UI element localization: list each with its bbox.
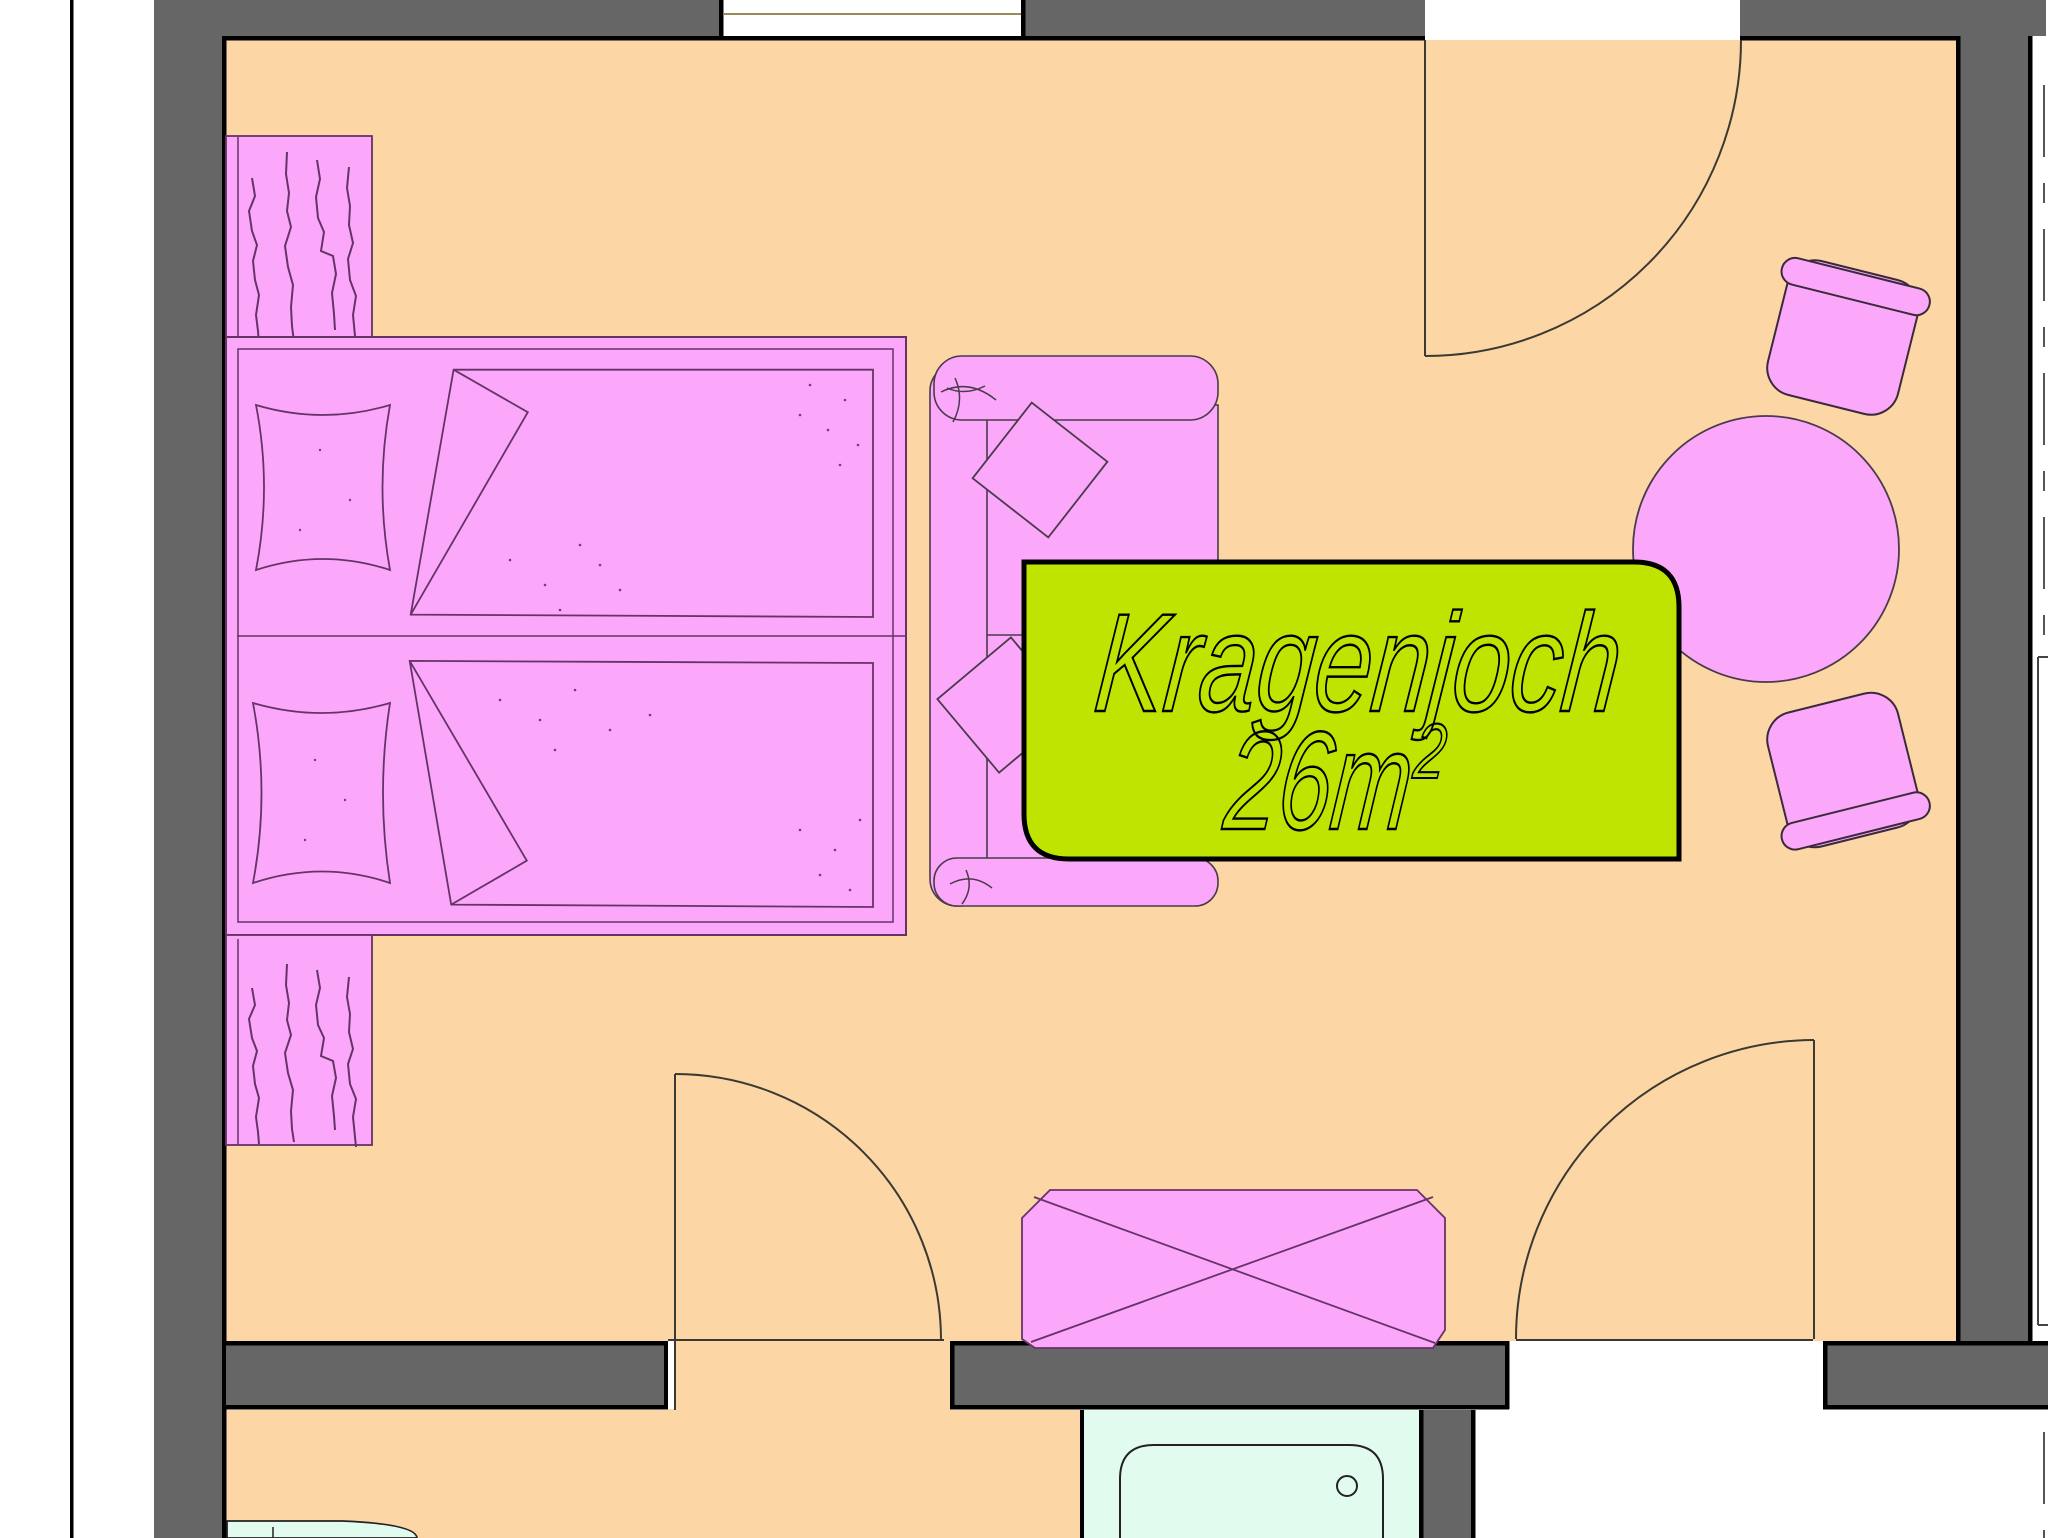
- svg-text:26m: 26m: [1218, 703, 1420, 859]
